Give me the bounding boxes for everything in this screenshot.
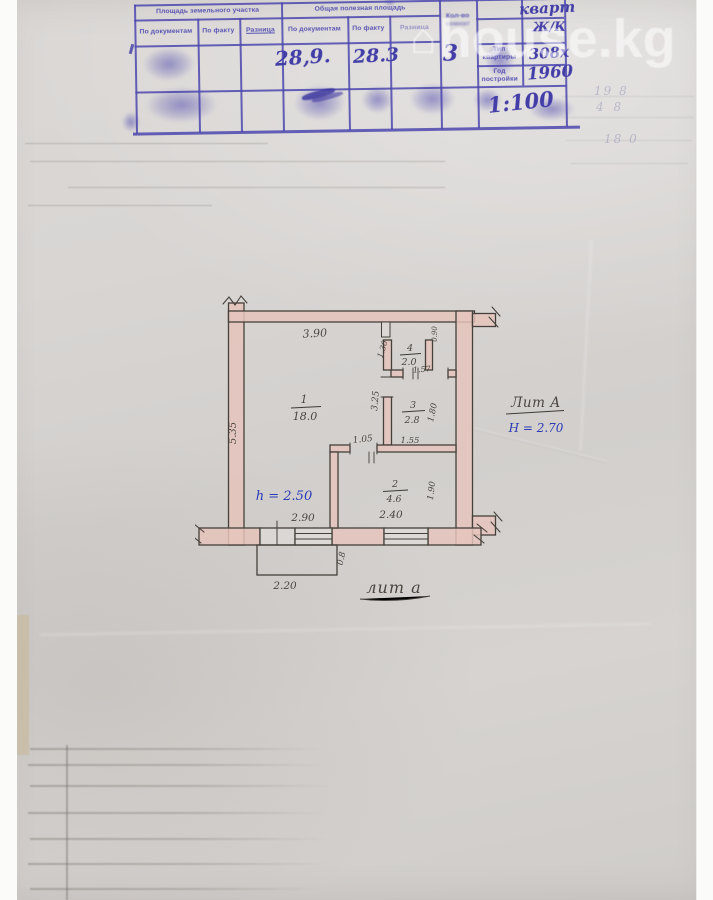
room3-number: 3 xyxy=(410,400,416,411)
dim-left-height: 5.35 xyxy=(228,422,239,444)
room3-area: 2.8 xyxy=(403,415,419,426)
value-area-by-docs: 28,9. xyxy=(274,43,331,71)
dim-hall: 3.25 xyxy=(370,390,382,411)
dim-room2-door: 1.05 xyxy=(352,434,373,446)
room2-area: 4.6 xyxy=(385,494,401,505)
window-2 xyxy=(384,528,428,545)
ink-smudge xyxy=(143,47,196,82)
wall-bottom-segment xyxy=(332,528,384,545)
ink-smudge xyxy=(122,112,140,132)
wall-bottom-segment xyxy=(199,528,260,545)
wall-room4-bottom xyxy=(448,370,456,377)
subheader-diff: Разница xyxy=(240,22,280,39)
house-logo-icon: ⌂ xyxy=(410,14,437,63)
ink-smudge xyxy=(361,86,393,114)
wall-right xyxy=(456,311,473,545)
ghost-note: 18 0 xyxy=(604,132,639,146)
ghost-line xyxy=(28,764,323,766)
subheader-by-fact: По факту xyxy=(348,18,388,41)
dim-room3-depth: 1.80 xyxy=(426,402,440,423)
ghost-line-vertical xyxy=(66,745,68,900)
subheader-by-docs: По документам xyxy=(135,21,196,44)
wall-interior-vertical xyxy=(384,397,392,445)
litera-main-underline xyxy=(506,411,564,415)
ghost-line xyxy=(28,863,328,865)
wall-top xyxy=(229,311,475,322)
wall-bottom-segment xyxy=(428,528,481,545)
door-opening-ticks-room3 xyxy=(381,377,393,397)
ink-smudge xyxy=(409,83,455,116)
room2-number: 2 xyxy=(391,479,398,490)
page-edge-sliver xyxy=(17,615,29,755)
dim-niche: 0.90 xyxy=(431,326,439,342)
ghost-line xyxy=(68,187,445,188)
ghost-line xyxy=(28,812,328,814)
wall-room2-top xyxy=(377,445,456,452)
ghost-line xyxy=(30,161,445,162)
room1-fraction-line xyxy=(291,407,321,409)
scanned-floorplan-photo: 19 8 4 8 18 0 Площадь земельного участка… xyxy=(0,0,713,900)
plan-dimensions: 3.90 5.35 1 18.0 4 2.0 1.30 0.90 1.57 3.… xyxy=(228,326,561,597)
subheader-by-docs: По документам xyxy=(282,18,346,41)
dim-room2-depth: 1.90 xyxy=(426,480,438,501)
litera-main-label: Лит А xyxy=(510,395,561,411)
room1-area: 18.0 xyxy=(293,410,318,423)
ceiling-height-note: h = 2.50 xyxy=(256,489,312,504)
ink-smudge xyxy=(528,97,574,122)
ghost-note: 4 8 xyxy=(596,100,624,114)
dim-top-width: 3.90 xyxy=(302,326,327,340)
wall-room2-left xyxy=(330,452,338,528)
watermark-text: house.kg xyxy=(439,9,676,69)
room4-number: 4 xyxy=(406,343,413,354)
ghost-line xyxy=(28,205,212,206)
dim-window1: 2.90 xyxy=(290,512,315,524)
ghost-note: 19 8 xyxy=(594,84,629,98)
room1-number: 1 xyxy=(301,393,308,406)
photo-edge-right xyxy=(696,0,713,900)
dim-porch-width: 2.20 xyxy=(272,580,297,592)
litera-porch-label: лит а xyxy=(366,578,421,597)
vent-niche xyxy=(382,322,391,337)
ghost-line xyxy=(30,785,330,787)
wall-room4-bottom xyxy=(391,370,403,377)
dim-porch-depth: 0.8 xyxy=(336,550,349,566)
door-leaf-ticks-room2 xyxy=(369,452,374,463)
subheader-by-fact: По факту xyxy=(198,20,238,43)
porch-outline xyxy=(257,545,337,575)
dim-room3-width: 1.55 xyxy=(401,436,420,446)
header-land-area: Площадь земельного участка xyxy=(136,3,279,18)
litera-height-note: Н = 2.70 xyxy=(508,421,564,435)
dim-room4-door: 1.57 xyxy=(413,364,432,374)
ghost-rule xyxy=(570,163,688,164)
blue-ink-notes: h = 2.50 Н = 2.70 xyxy=(256,421,564,504)
room2-fraction-line xyxy=(383,490,408,492)
ghost-line xyxy=(30,748,320,750)
plan-walls xyxy=(195,296,502,575)
ink-smudge xyxy=(145,86,218,123)
watermark: ⌂house.kg xyxy=(410,8,696,80)
ghost-line xyxy=(30,888,320,890)
window-1 xyxy=(295,528,332,545)
value-area-by-fact: 28.3 xyxy=(352,44,399,68)
ghost-line xyxy=(30,838,325,840)
photo-edge-left xyxy=(0,0,17,900)
dim-window2: 2.40 xyxy=(378,509,403,521)
wall-room2-top xyxy=(330,445,350,452)
floor-plan-svg: 3.90 5.35 1 18.0 4 2.0 1.30 0.90 1.57 3.… xyxy=(195,285,580,610)
